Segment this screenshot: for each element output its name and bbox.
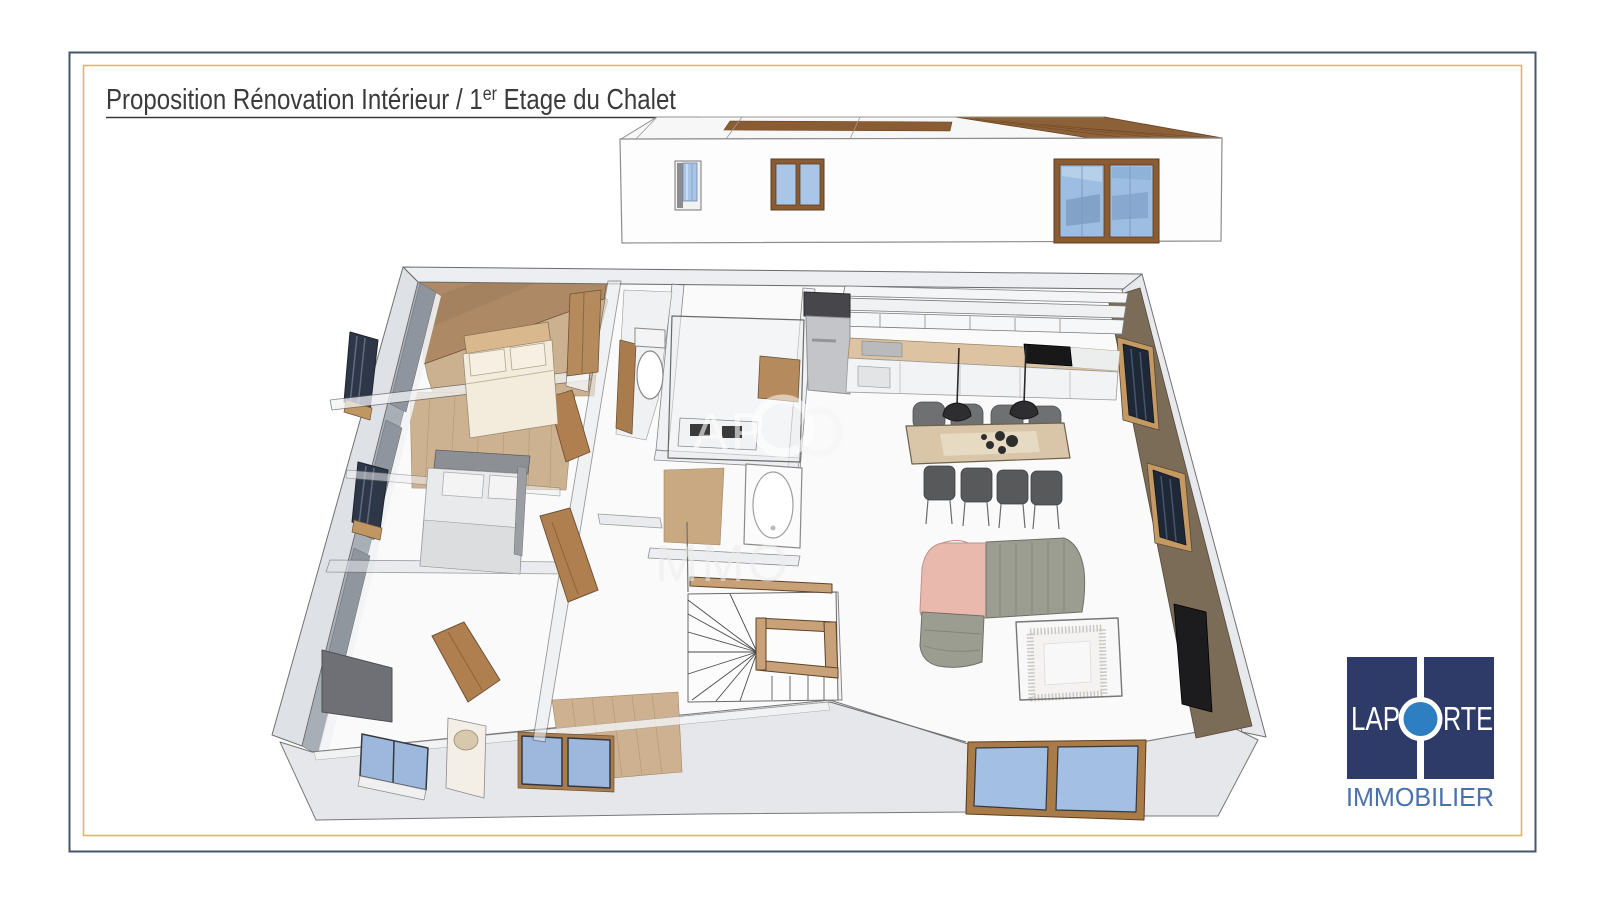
svg-text:MMO: MMO [655, 535, 791, 593]
svg-text:RTE: RTE [1443, 700, 1493, 737]
svg-text:Proposition Rénovation Intérie: Proposition Rénovation Intérieur / 1er E… [106, 84, 676, 116]
svg-text:LAP: LAP [1351, 700, 1400, 737]
svg-text:IMMOBILIER: IMMOBILIER [1346, 782, 1494, 812]
